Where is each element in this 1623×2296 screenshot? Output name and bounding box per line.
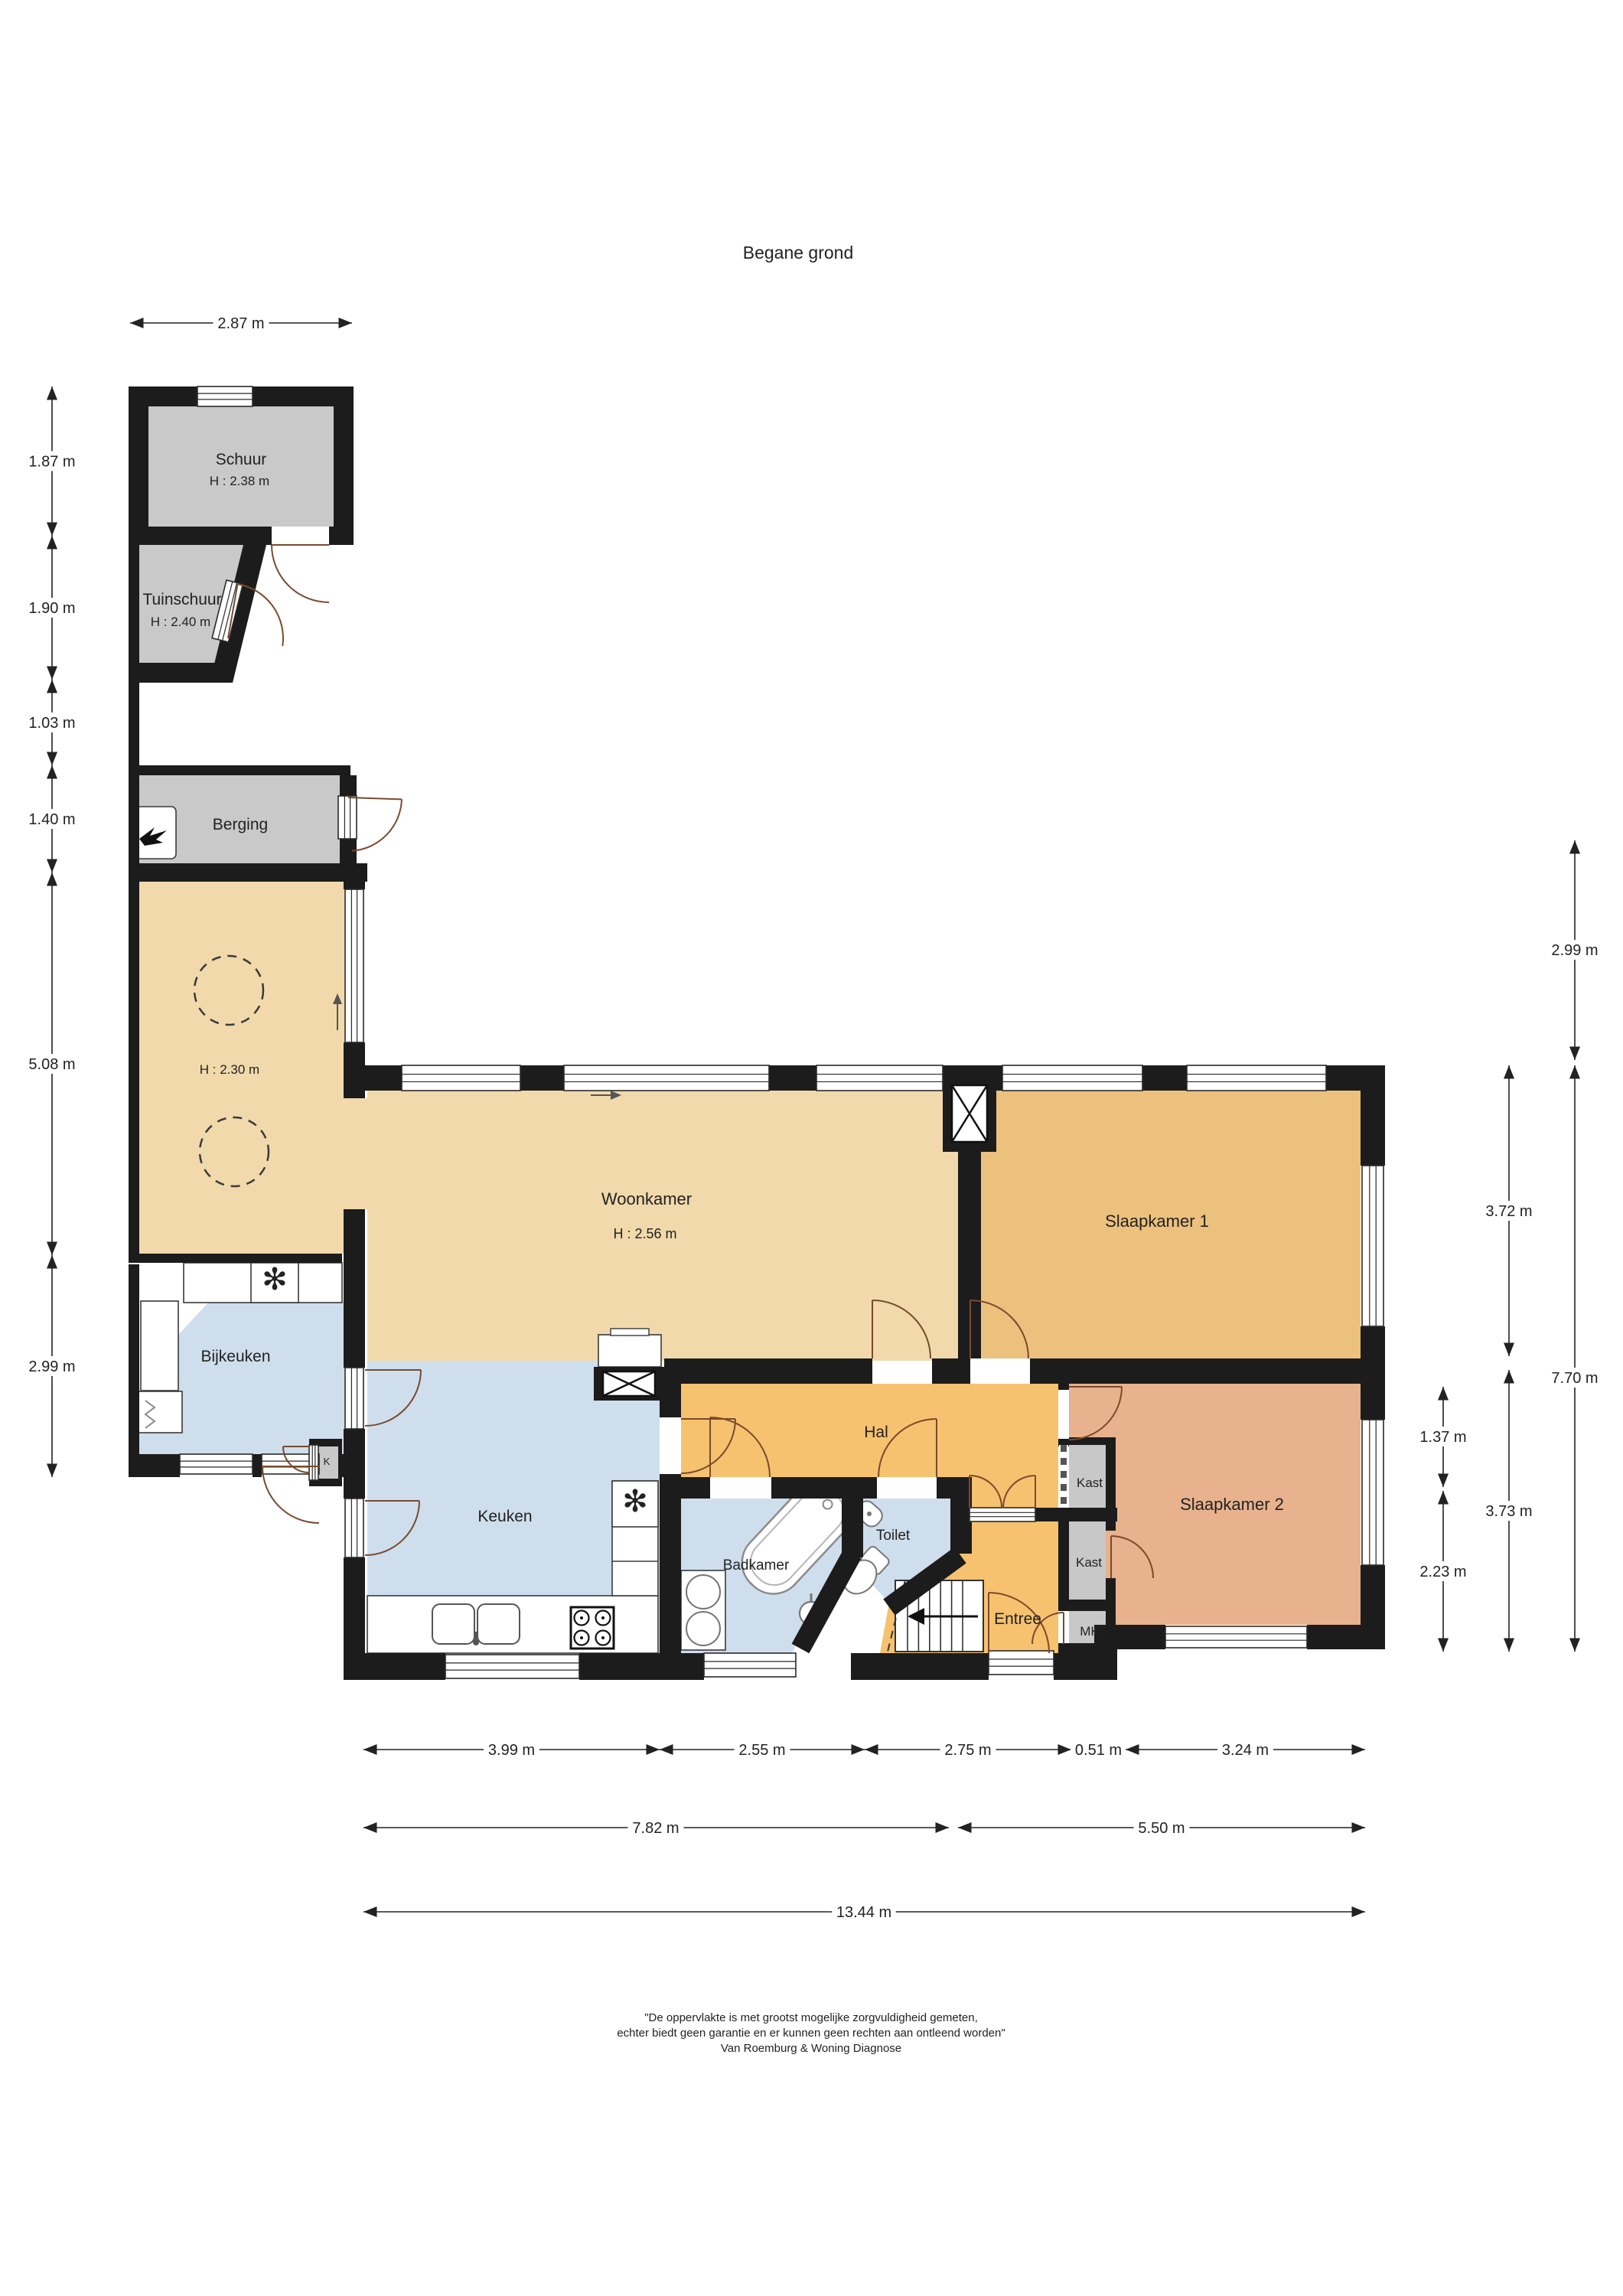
- room-label-tuinschuur: Tuinschuur: [142, 591, 221, 608]
- stove-burner: [580, 1616, 583, 1619]
- wall: [579, 1653, 704, 1680]
- room-label-kast-onder: Kast: [1076, 1555, 1102, 1570]
- wall: [1058, 1384, 1069, 1390]
- fireplace-icon: [598, 1335, 661, 1367]
- wall: [129, 1264, 139, 1477]
- dimension-label: 2.87 m: [217, 315, 264, 332]
- wall: [1142, 1065, 1187, 1091]
- wall: [129, 863, 367, 882]
- wall: [1054, 1653, 1117, 1680]
- stove-burner: [601, 1636, 605, 1639]
- room-label-mk: MK: [1080, 1624, 1100, 1639]
- dimension-label: 1.40 m: [28, 811, 75, 828]
- wall: [1106, 1578, 1116, 1653]
- room-label-slaapkamer2: Slaapkamer 2: [1180, 1495, 1284, 1514]
- dimension-label: 3.99 m: [488, 1742, 535, 1759]
- dimension-label: 3.24 m: [1222, 1742, 1269, 1759]
- window: [704, 1653, 796, 1677]
- door-glass: [345, 1499, 363, 1557]
- room-label-woonkamer: Woonkamer: [601, 1189, 692, 1208]
- window: [402, 1065, 520, 1091]
- wall: [769, 1065, 816, 1091]
- wall: [344, 1653, 445, 1680]
- page-title: Begane grond: [743, 243, 854, 263]
- wall: [344, 863, 365, 889]
- stove-icon: [571, 1607, 614, 1649]
- wall: [1361, 1326, 1385, 1420]
- door-leaf: [338, 796, 357, 839]
- bijkeuken-cupboard: [141, 1301, 178, 1391]
- sink-icon: [477, 1604, 520, 1644]
- wall: [660, 1474, 681, 1653]
- wall: [1117, 1625, 1165, 1649]
- window: [1002, 1065, 1142, 1091]
- wall: [129, 882, 139, 1254]
- window: [180, 1454, 253, 1474]
- wall: [1069, 1600, 1116, 1611]
- wall: [344, 1209, 365, 1368]
- footer-line1: "De oppervlakte is met grootst mogelijke…: [644, 2011, 978, 2024]
- room-label-entree: Entree: [994, 1610, 1041, 1628]
- washer-dryer-icon: [681, 1570, 725, 1650]
- dimension-label: 3.72 m: [1485, 1203, 1532, 1220]
- dimension-label: 7.70 m: [1551, 1370, 1598, 1387]
- dimension-label: 1.90 m: [28, 600, 75, 617]
- wall: [129, 663, 219, 683]
- dimension-label: 7.82 m: [632, 1820, 679, 1837]
- wall: [129, 775, 139, 863]
- dimension-label: 2.55 m: [738, 1742, 785, 1759]
- room-label-k: K: [324, 1456, 331, 1467]
- wall: [681, 1477, 710, 1499]
- wall: [771, 1477, 842, 1499]
- wall: [129, 527, 272, 545]
- window: [345, 889, 363, 1042]
- window: [445, 1655, 579, 1678]
- laundry-sink-icon: [136, 1391, 182, 1433]
- dimension-label: 2.99 m: [28, 1358, 75, 1375]
- wall: [1106, 1443, 1116, 1531]
- wall: [664, 1358, 872, 1384]
- window: [197, 386, 253, 406]
- dimension-label: 2.75 m: [944, 1742, 991, 1759]
- wall: [851, 1653, 989, 1680]
- room-label-keuken: Keuken: [477, 1508, 532, 1525]
- footer-line3: Van Roemburg & Woning Diagnose: [721, 2042, 901, 2055]
- wall: [520, 1065, 564, 1091]
- dimension-label: 2.23 m: [1419, 1564, 1466, 1580]
- fireplace-cap: [611, 1329, 649, 1336]
- wall: [340, 839, 357, 865]
- wall: [950, 1508, 970, 1521]
- room-height-garage: H : 2.30 m: [200, 1062, 259, 1077]
- window: [1187, 1065, 1326, 1091]
- floorplan-canvas: ✻✻2.87 m1.87 m1.90 m1.03 m1.40 m5.08 m2.…: [0, 0, 1623, 2296]
- room-label-hal: Hal: [864, 1424, 888, 1441]
- sink-icon: [432, 1604, 474, 1644]
- hall-glass-door: [970, 1508, 1035, 1521]
- room-label-slaapkamer1: Slaapkamer 1: [1105, 1212, 1209, 1231]
- dimension-label: 2.99 m: [1551, 942, 1598, 959]
- window: [1362, 1420, 1383, 1565]
- footer-line2: echter biedt geen garantie en er kunnen …: [617, 2027, 1005, 2040]
- wall: [842, 1477, 863, 1557]
- stove-burner: [601, 1616, 605, 1619]
- dimension-label: 1.03 m: [28, 715, 75, 732]
- wall: [129, 765, 350, 775]
- wall: [340, 775, 357, 796]
- fan-icon: ✻: [262, 1263, 288, 1296]
- wall: [344, 1065, 402, 1091]
- wall: [1307, 1625, 1385, 1649]
- room-height-tuinschuur: H : 2.40 m: [151, 615, 210, 629]
- fan-icon: ✻: [622, 1485, 648, 1518]
- wall: [1361, 1065, 1385, 1166]
- wall: [1030, 1358, 1361, 1384]
- wall: [932, 1358, 970, 1384]
- door-glass: [345, 1368, 363, 1429]
- room-label-berging: Berging: [213, 816, 268, 833]
- window: [1165, 1626, 1307, 1648]
- room-label-bijkeuken: Bijkeuken: [200, 1348, 270, 1365]
- room-label-toilet: Toilet: [876, 1528, 911, 1544]
- dimension-label: 13.44 m: [836, 1904, 891, 1921]
- wall: [1058, 1521, 1069, 1611]
- room-bijkeuken: [178, 1301, 346, 1454]
- stove-burner: [580, 1636, 583, 1639]
- door-leaf: [309, 1445, 318, 1480]
- dimension-label: 1.87 m: [28, 454, 75, 471]
- berging-door-arc: [352, 799, 402, 850]
- front-door-glass: [989, 1651, 1054, 1675]
- schuur-door-arc: [272, 545, 329, 602]
- wall: [1035, 1508, 1117, 1521]
- wall: [129, 406, 148, 527]
- passage-garage-woonkamer: [344, 1098, 367, 1209]
- dimension-label: 3.73 m: [1485, 1503, 1532, 1520]
- wall: [334, 386, 354, 545]
- room-label-badkamer: Badkamer: [723, 1557, 790, 1574]
- dimension-label: 0.51 m: [1075, 1742, 1122, 1759]
- wall: [129, 545, 139, 775]
- room-height-woonkamer: H : 2.56 m: [613, 1226, 676, 1241]
- window: [1362, 1166, 1383, 1326]
- window: [564, 1065, 769, 1091]
- wall: [344, 1429, 365, 1499]
- room-label-kast-boven: Kast: [1077, 1476, 1103, 1490]
- room-height-schuur: H : 2.38 m: [210, 474, 269, 488]
- room-label-schuur: Schuur: [216, 451, 267, 468]
- dimension-label: 1.37 m: [1419, 1429, 1466, 1446]
- dimension-label: 5.08 m: [28, 1056, 75, 1073]
- window: [816, 1065, 943, 1091]
- wall: [129, 1454, 180, 1477]
- wall: [129, 1254, 342, 1263]
- boiler-box: [133, 807, 176, 859]
- wall: [253, 1454, 262, 1477]
- wall: [129, 386, 197, 406]
- wall: [329, 527, 354, 545]
- dimension-label: 5.50 m: [1138, 1820, 1185, 1837]
